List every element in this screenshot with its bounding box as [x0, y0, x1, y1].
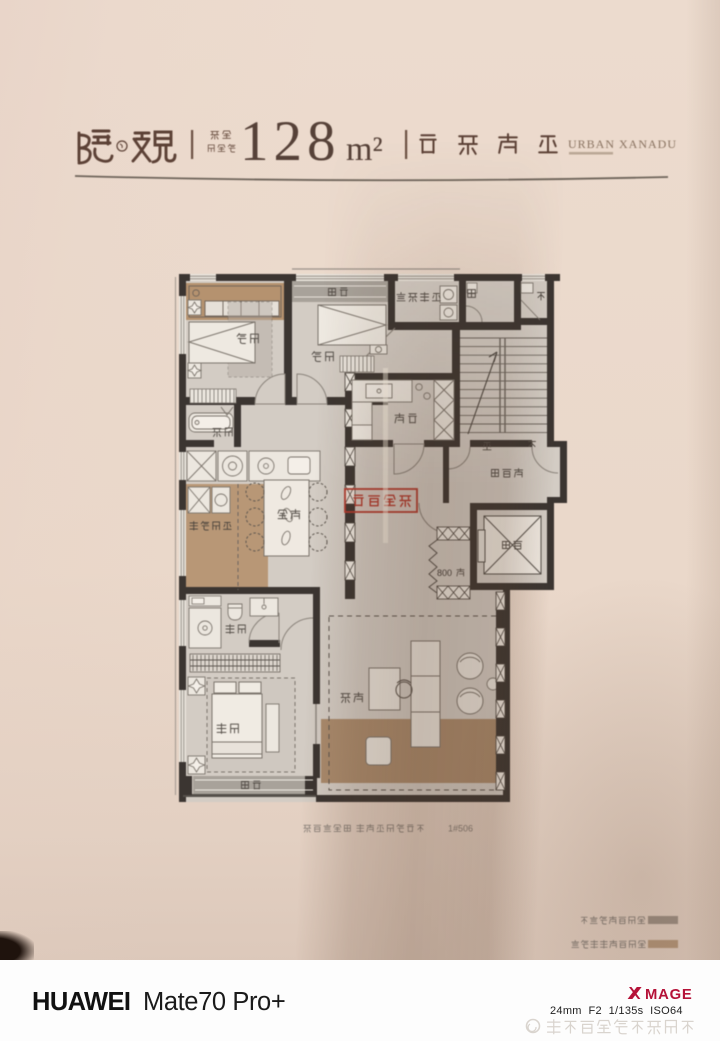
svg-text:24mm F2 1/135s ISO64: 24mm F2 1/135s ISO64 — [550, 1005, 683, 1017]
svg-text:MAGE: MAGE — [645, 987, 693, 1003]
svg-text:Mate70 Pro+: Mate70 Pro+ — [143, 988, 285, 1016]
svg-text:HUAWEI: HUAWEI — [32, 988, 130, 1016]
